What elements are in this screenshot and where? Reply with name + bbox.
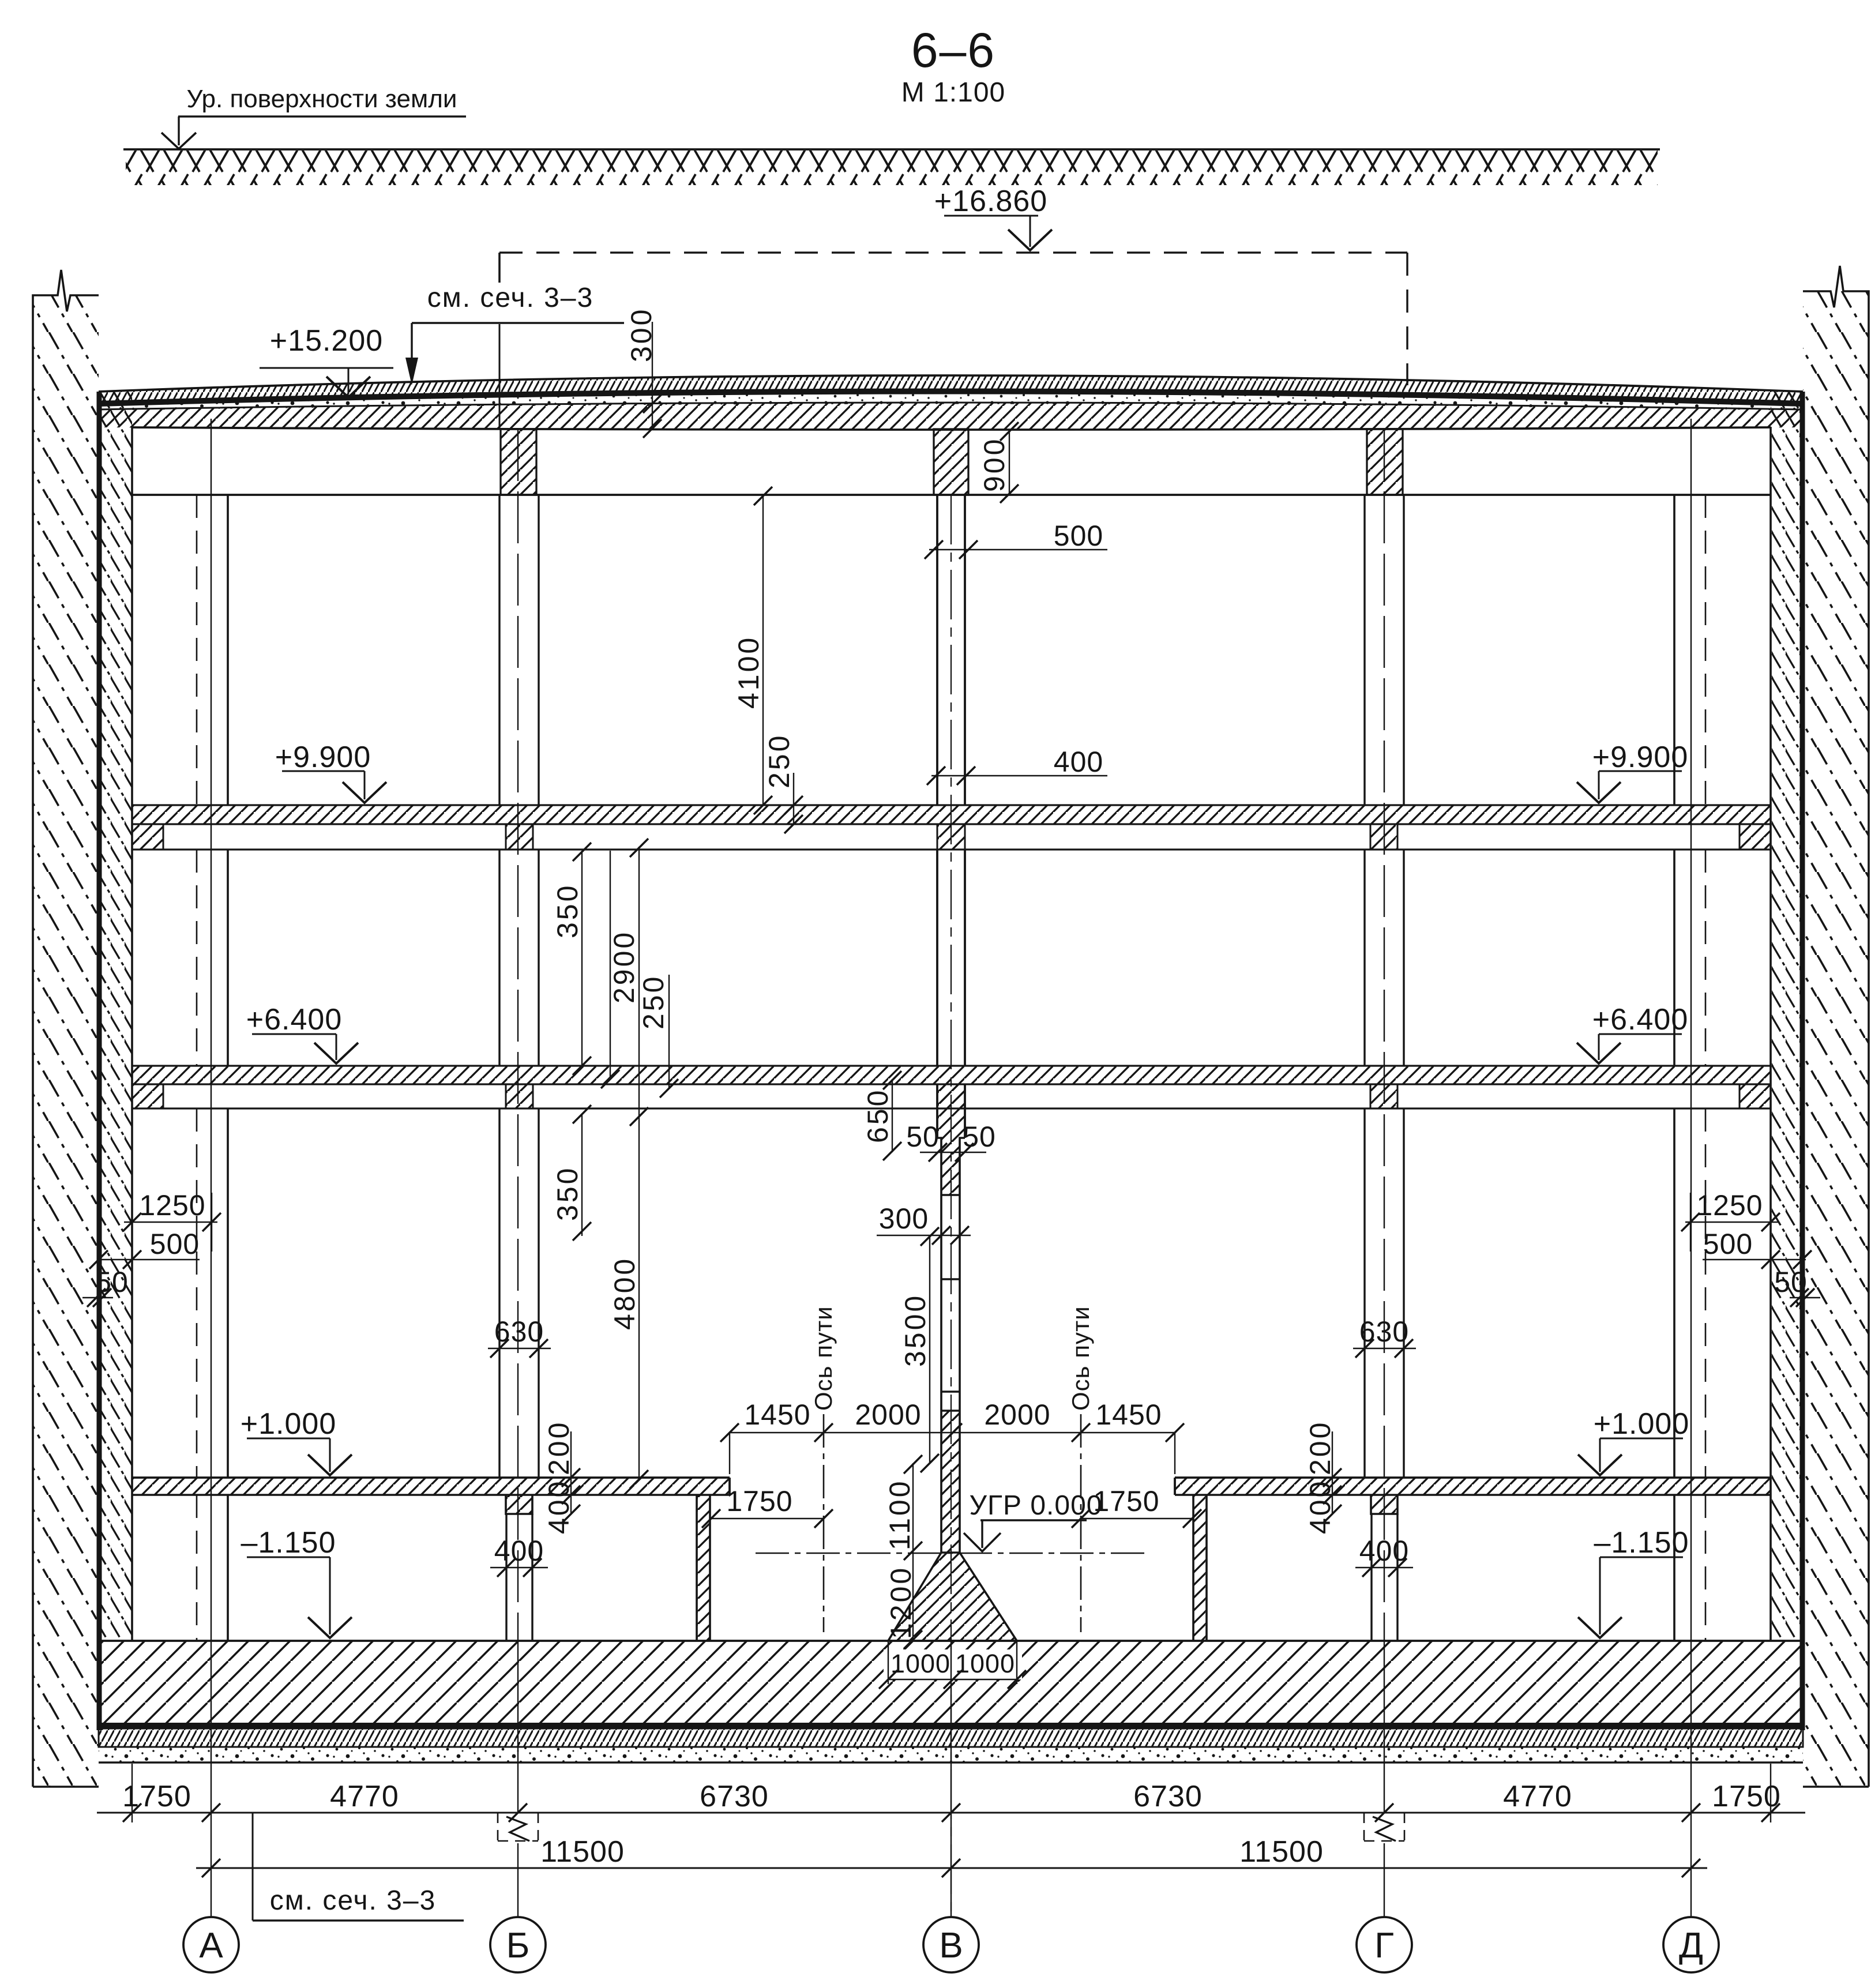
svg-text:М 1:100: М 1:100 — [901, 77, 1005, 108]
svg-text:1450: 1450 — [1095, 1399, 1162, 1431]
svg-text:Ось пути: Ось пути — [810, 1306, 837, 1411]
svg-text:+9.900: +9.900 — [1592, 741, 1689, 774]
svg-text:–1.150: –1.150 — [241, 1526, 336, 1559]
svg-text:–1.150: –1.150 — [1594, 1526, 1689, 1559]
svg-text:300: 300 — [625, 307, 658, 362]
svg-text:630: 630 — [1359, 1316, 1409, 1348]
svg-text:2900: 2900 — [608, 930, 640, 1004]
svg-text:1750: 1750 — [726, 1485, 792, 1517]
svg-text:+16.860: +16.860 — [934, 185, 1047, 218]
svg-text:400: 400 — [543, 1479, 575, 1534]
svg-text:630: 630 — [494, 1316, 544, 1348]
svg-text:В: В — [939, 1926, 963, 1966]
svg-text:500: 500 — [150, 1228, 200, 1260]
svg-text:200: 200 — [543, 1420, 575, 1475]
svg-text:350: 350 — [551, 1166, 584, 1221]
svg-text:Г: Г — [1374, 1926, 1394, 1966]
svg-text:+1.000: +1.000 — [1594, 1407, 1690, 1441]
svg-text:250: 250 — [763, 734, 795, 788]
svg-text:см. сеч. 3–3: см. сеч. 3–3 — [270, 1885, 437, 1916]
svg-text:900: 900 — [978, 437, 1010, 492]
svg-text:400: 400 — [1304, 1479, 1336, 1534]
svg-text:1450: 1450 — [744, 1399, 810, 1431]
svg-text:400: 400 — [1054, 746, 1103, 778]
svg-text:+6.400: +6.400 — [1592, 1003, 1689, 1036]
svg-text:350: 350 — [551, 884, 584, 938]
svg-text:+9.900: +9.900 — [275, 741, 371, 774]
svg-text:500: 500 — [1054, 520, 1103, 552]
svg-text:2000: 2000 — [984, 1399, 1050, 1431]
svg-text:11500: 11500 — [1239, 1835, 1324, 1869]
svg-text:650: 650 — [862, 1088, 894, 1143]
svg-text:500: 500 — [1703, 1228, 1753, 1260]
svg-text:см. сеч. 3–3: см. сеч. 3–3 — [427, 283, 594, 313]
svg-text:4100: 4100 — [732, 636, 765, 709]
svg-text:11500: 11500 — [540, 1835, 625, 1869]
svg-text:1250: 1250 — [1696, 1189, 1763, 1222]
svg-text:50: 50 — [963, 1121, 996, 1153]
svg-text:200: 200 — [1304, 1420, 1336, 1475]
svg-text:1100: 1100 — [884, 1479, 916, 1550]
svg-text:400: 400 — [494, 1535, 544, 1567]
svg-text:6730: 6730 — [1133, 1780, 1203, 1813]
svg-text:А: А — [199, 1926, 223, 1966]
svg-text:400: 400 — [1359, 1535, 1409, 1567]
svg-text:3500: 3500 — [899, 1294, 931, 1367]
svg-text:Б: Б — [506, 1926, 530, 1966]
svg-text:4800: 4800 — [608, 1257, 641, 1330]
svg-text:+15.200: +15.200 — [270, 324, 383, 358]
svg-text:Ур. поверхности земли: Ур. поверхности земли — [187, 85, 457, 113]
svg-text:1200: 1200 — [885, 1566, 917, 1639]
svg-text:Д: Д — [1679, 1926, 1703, 1966]
svg-text:50: 50 — [906, 1121, 940, 1153]
svg-text:1000: 1000 — [891, 1649, 950, 1678]
svg-text:250: 250 — [637, 975, 670, 1029]
svg-text:6730: 6730 — [700, 1780, 769, 1813]
svg-text:1000: 1000 — [955, 1649, 1015, 1678]
svg-text:1250: 1250 — [139, 1189, 205, 1222]
svg-text:+6.400: +6.400 — [246, 1003, 343, 1036]
svg-text:4770: 4770 — [1503, 1780, 1572, 1813]
svg-text:50: 50 — [95, 1266, 129, 1298]
svg-text:6–6: 6–6 — [911, 23, 995, 77]
svg-text:50: 50 — [1774, 1266, 1808, 1298]
svg-text:300: 300 — [879, 1202, 929, 1235]
svg-text:+1.000: +1.000 — [241, 1407, 337, 1441]
svg-text:Ось пути: Ось пути — [1067, 1306, 1094, 1411]
svg-text:2000: 2000 — [855, 1399, 921, 1431]
svg-text:1750: 1750 — [1093, 1485, 1159, 1517]
svg-text:4770: 4770 — [330, 1780, 399, 1813]
